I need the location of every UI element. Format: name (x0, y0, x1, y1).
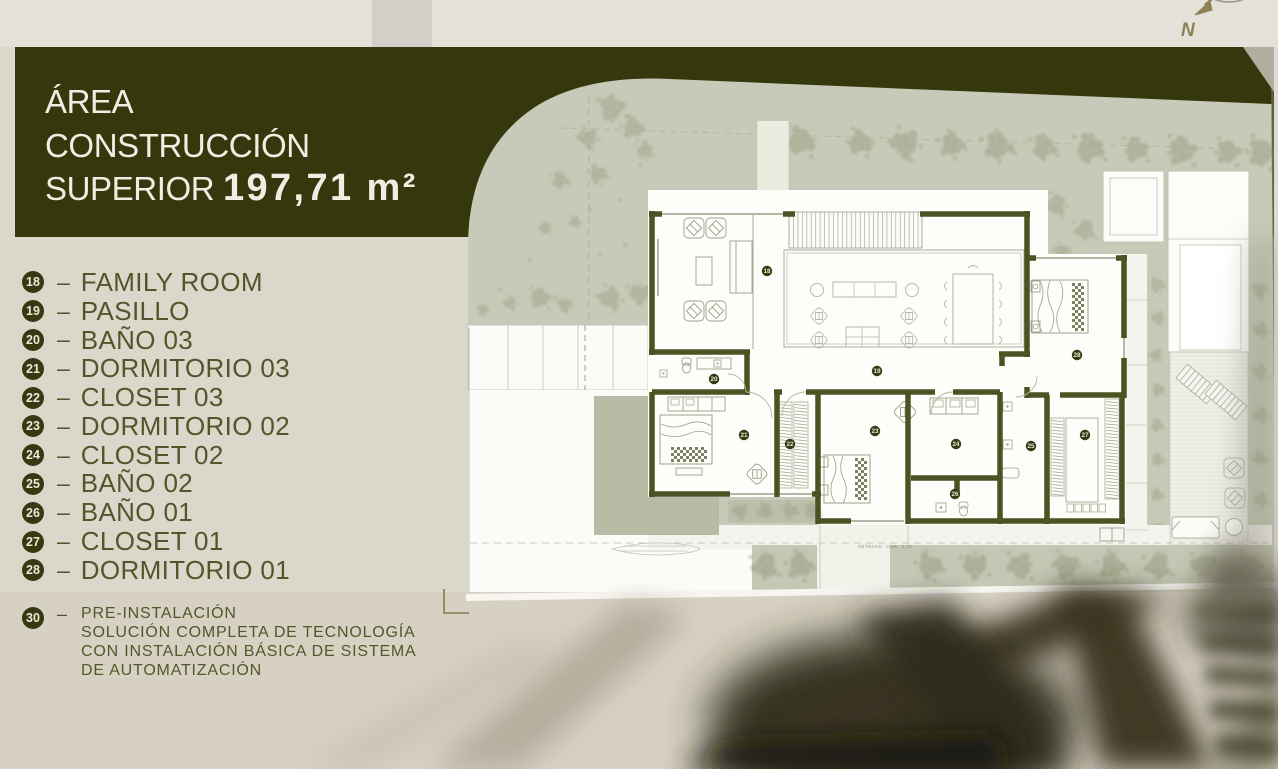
svg-text:26: 26 (951, 491, 959, 498)
svg-text:N: N (1181, 20, 1196, 41)
svg-text:28: 28 (1073, 352, 1081, 359)
svg-text:20: 20 (710, 376, 718, 383)
svg-text:23: 23 (871, 428, 879, 435)
svg-text:25: 25 (1027, 443, 1035, 450)
svg-text:22: 22 (786, 441, 794, 448)
svg-text:SETBACK LINE 3.00: SETBACK LINE 3.00 (858, 544, 912, 549)
svg-text:27: 27 (1081, 432, 1089, 439)
svg-text:18: 18 (763, 268, 771, 275)
svg-text:21: 21 (740, 432, 748, 439)
svg-text:24: 24 (952, 441, 960, 448)
svg-text:19: 19 (873, 368, 881, 375)
